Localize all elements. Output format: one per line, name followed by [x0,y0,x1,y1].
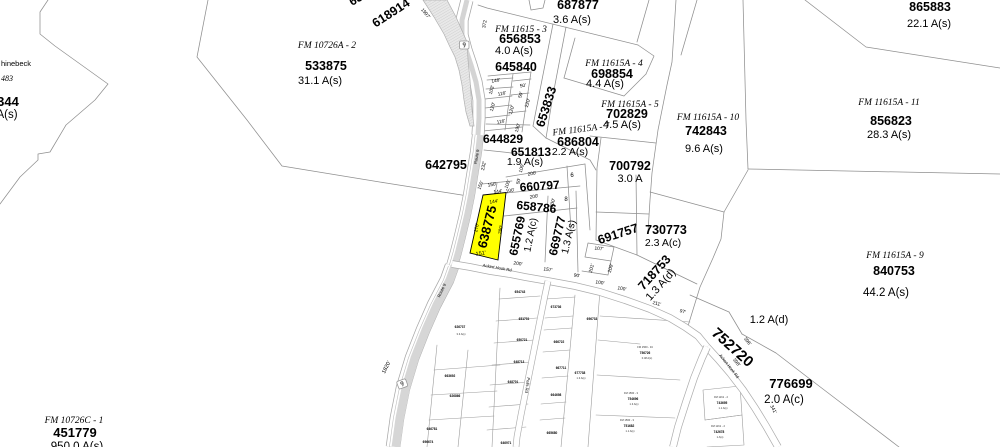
svg-text:665680: 665680 [547,431,558,435]
svg-text:107': 107' [594,246,603,253]
svg-text:667711: 667711 [556,366,567,370]
svg-text:200': 200' [513,260,523,267]
svg-text:50': 50' [519,82,526,89]
svg-text:150': 150' [487,181,497,188]
svg-text:754696: 754696 [628,397,639,401]
svg-text:756726: 756726 [640,351,651,355]
svg-text:483: 483 [1,74,13,83]
svg-text:FM 1161 - 2: FM 1161 - 2 [714,395,728,399]
svg-text:656853: 656853 [499,32,541,46]
svg-text:2.0 A(c): 2.0 A(c) [764,394,804,406]
svg-text:660797: 660797 [519,178,560,195]
svg-text:651731: 651731 [519,317,530,321]
svg-text:654743: 654743 [515,290,526,294]
svg-text:730773: 730773 [645,223,687,237]
svg-text:FM 10726A - 2: FM 10726A - 2 [297,41,356,51]
svg-text:673736: 673736 [551,305,562,309]
svg-text:677738: 677738 [575,371,586,375]
svg-text:1.3 A(s): 1.3 A(s) [630,402,639,406]
svg-text:533875: 533875 [305,59,347,73]
svg-text:626866: 626866 [450,394,461,398]
svg-text:663692: 663692 [445,374,456,378]
svg-text:A(s): A(s) [0,109,18,121]
svg-text:90': 90' [573,273,580,280]
svg-text:664698: 664698 [551,393,562,397]
svg-text:144': 144' [489,198,499,205]
svg-text:44.2 A(s): 44.2 A(s) [863,287,909,299]
svg-text:3.0 A: 3.0 A [617,173,643,185]
svg-text:742678: 742678 [714,430,725,434]
svg-text:9.6 A(s): 9.6 A(s) [685,143,723,155]
svg-text:645840: 645840 [495,60,537,74]
svg-text:FM 1560 - 34: FM 1560 - 34 [637,345,653,349]
svg-text:700792: 700792 [609,159,651,173]
svg-text:FM 1560 - 3: FM 1560 - 3 [624,391,639,395]
svg-text:FM 1560 - 3: FM 1560 - 3 [620,418,635,422]
svg-text:FM 11615A - 9: FM 11615A - 9 [865,251,924,261]
svg-text:776699: 776699 [769,376,812,391]
svg-text:696733: 696733 [587,317,598,321]
svg-text:3.6 A(s): 3.6 A(s) [553,14,591,26]
svg-text:FM 11615A - 10: FM 11615A - 10 [676,113,739,123]
svg-text:865883: 865883 [909,0,951,14]
svg-text:743695: 743695 [717,401,728,405]
svg-text:100': 100' [595,279,605,286]
svg-text:696674: 696674 [423,440,434,444]
svg-text:200': 200' [527,170,537,177]
svg-text:626737: 626737 [455,325,466,329]
svg-text:28.3 A(s): 28.3 A(s) [867,129,911,141]
svg-text:646971: 646971 [501,441,512,445]
svg-text:2.3 A(c): 2.3 A(c) [645,237,681,249]
svg-text:646781: 646781 [427,427,438,431]
svg-text:200': 200' [529,193,539,200]
svg-text:157': 157' [543,266,553,273]
svg-text:hinebeck: hinebeck [1,59,31,68]
svg-text:751682: 751682 [624,424,635,428]
svg-text:648701: 648701 [508,380,519,384]
svg-text:344: 344 [0,94,20,109]
svg-text:1.1 A(s): 1.1 A(s) [626,429,635,433]
svg-text:666722: 666722 [554,340,565,344]
svg-text:742843: 742843 [685,124,727,138]
svg-text:644829: 644829 [483,132,523,146]
svg-text:650721: 650721 [517,338,528,342]
svg-text:1.3 A(s): 1.3 A(s) [577,376,586,380]
svg-text:950.0 A(s): 950.0 A(s) [51,441,104,447]
svg-text:840753: 840753 [873,264,915,278]
svg-text:3.3 A(s): 3.3 A(s) [457,332,466,336]
svg-text:31.1 A(s): 31.1 A(s) [298,75,342,87]
svg-text:451779: 451779 [53,425,96,440]
svg-text:4.0 A(s): 4.0 A(s) [495,45,533,57]
svg-text:FM 1161 - 2: FM 1161 - 2 [711,424,725,428]
svg-text:1 A(s): 1 A(s) [717,435,724,439]
svg-text:144': 144' [493,188,503,195]
svg-text:642795: 642795 [425,158,467,172]
svg-text:1.1 A(s): 1.1 A(s) [719,406,728,410]
svg-text:FM 11615A - 11: FM 11615A - 11 [857,98,919,108]
svg-text:856823: 856823 [870,114,912,128]
svg-text:4.4 A(s): 4.4 A(s) [586,78,624,90]
svg-text:648713: 648713 [514,360,525,364]
svg-text:2.2 A(s): 2.2 A(s) [552,146,588,158]
svg-text:0.48 A(s): 0.48 A(s) [642,356,653,360]
svg-text:22.1 A(s): 22.1 A(s) [907,18,951,30]
svg-text:1.2 A(d): 1.2 A(d) [750,314,789,326]
svg-text:687877: 687877 [557,0,599,12]
